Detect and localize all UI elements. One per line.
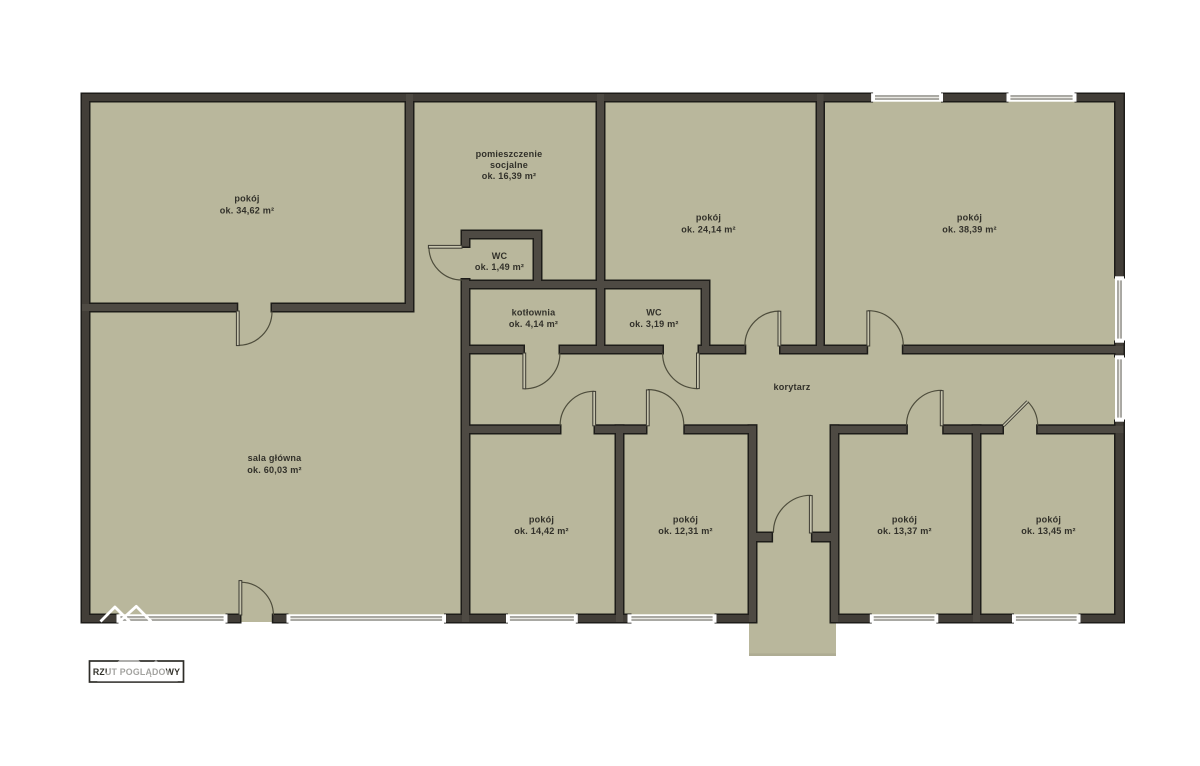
svg-text:socjalne: socjalne [490, 160, 528, 170]
svg-text:ok. 14,42 m²: ok. 14,42 m² [514, 526, 568, 536]
svg-text:ok. 38,39 m²: ok. 38,39 m² [942, 225, 996, 235]
svg-text:WC: WC [492, 251, 508, 261]
svg-text:WC: WC [646, 308, 662, 318]
svg-text:pomieszczenie: pomieszczenie [476, 149, 543, 159]
svg-text:ok. 16,39 m²: ok. 16,39 m² [482, 171, 536, 181]
svg-text:ok. 4,14 m²: ok. 4,14 m² [509, 319, 558, 329]
svg-text:pokój: pokój [957, 213, 982, 223]
svg-text:pokój: pokój [529, 515, 554, 525]
svg-text:ok. 34,62 m²: ok. 34,62 m² [220, 206, 274, 216]
svg-text:ok. 13,45 m²: ok. 13,45 m² [1021, 526, 1075, 536]
svg-text:ok. 1,49 m²: ok. 1,49 m² [475, 262, 524, 272]
svg-text:sala główna: sala główna [248, 453, 302, 463]
svg-text:ok. 13,37 m²: ok. 13,37 m² [877, 526, 931, 536]
svg-text:ok. 24,14 m²: ok. 24,14 m² [681, 225, 735, 235]
svg-text:pokój: pokój [673, 515, 698, 525]
svg-text:pokój: pokój [1036, 515, 1061, 525]
svg-text:ok. 12,31 m²: ok. 12,31 m² [658, 526, 712, 536]
svg-text:pokój: pokój [696, 213, 721, 223]
svg-text:pokój: pokój [234, 194, 259, 204]
svg-text:korytarz: korytarz [774, 382, 811, 392]
svg-text:pokój: pokój [892, 515, 917, 525]
svg-text:ok. 60,03 m²: ok. 60,03 m² [247, 465, 301, 475]
svg-text:ok. 3,19 m²: ok. 3,19 m² [629, 319, 678, 329]
svg-text:kotłownia: kotłownia [512, 308, 556, 318]
